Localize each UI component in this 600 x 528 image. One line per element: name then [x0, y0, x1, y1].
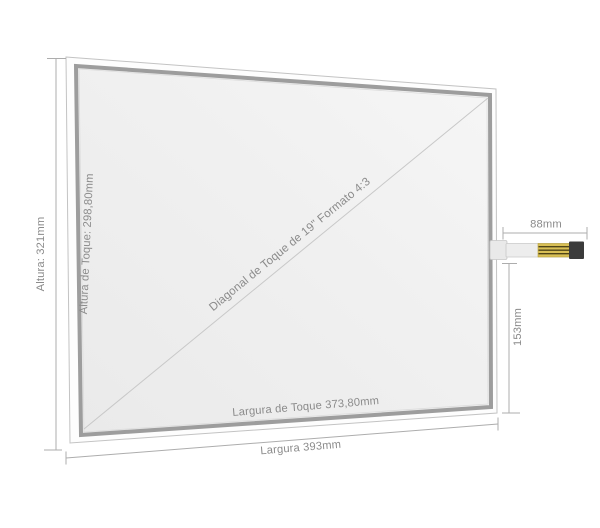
- flex-cable: [490, 241, 584, 260]
- label-connector-offset: 153mm: [512, 308, 524, 346]
- dim-total-height: [44, 59, 66, 451]
- cable-connector-tip: [569, 242, 584, 260]
- touchscreen-dimension-diagram: Altura: 321mm Altura de Toque: 298,80mm …: [0, 0, 600, 528]
- label-connector-length: 88mm: [530, 219, 562, 231]
- label-total-height: Altura: 321mm: [35, 217, 47, 292]
- diagram-svg: Altura: 321mm Altura de Toque: 298,80mm …: [0, 0, 600, 528]
- cable-strain-relief: [490, 241, 507, 260]
